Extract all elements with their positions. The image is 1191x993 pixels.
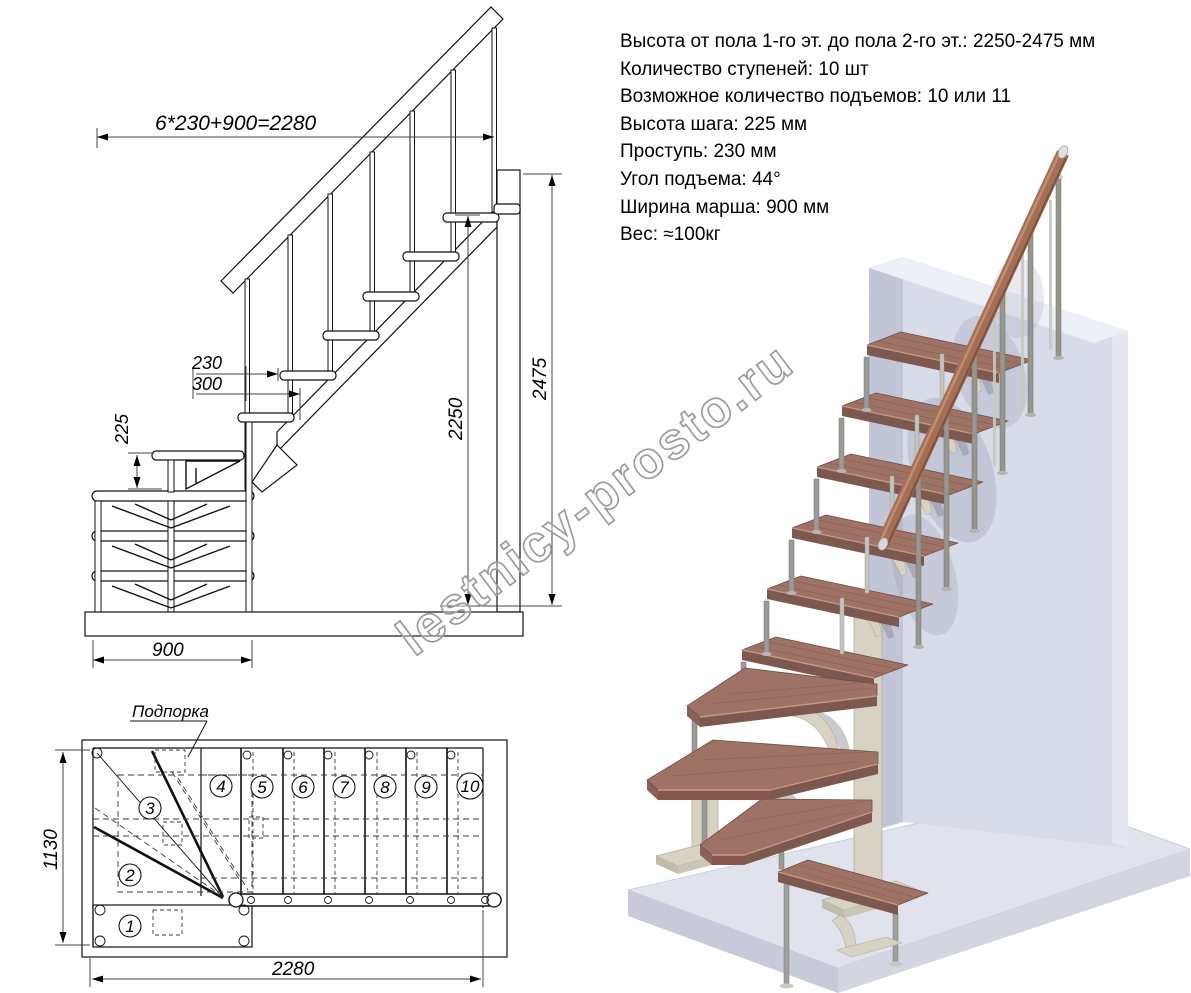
svg-text:10: 10 xyxy=(461,777,480,796)
support-label: Подпорка xyxy=(132,702,209,721)
spec-line-step-height: Высота шага: 225 мм xyxy=(620,111,1185,139)
step-number-8: 8 xyxy=(374,776,396,798)
svg-text:2: 2 xyxy=(124,866,135,885)
spec-line-angle: Угол подъема: 44° xyxy=(620,166,1185,194)
spec-line-height-range: Высота от пола 1-го эт. до пола 2-го эт.… xyxy=(620,28,1185,56)
dim-total-run-label: 6*230+900=2280 xyxy=(155,112,316,135)
step-number-2: 2 xyxy=(119,864,141,886)
svg-text:5: 5 xyxy=(257,778,267,797)
dim-tread-depth-label: 300 xyxy=(192,374,222,394)
dim-module-width-label: 900 xyxy=(152,640,184,661)
dim-height-floor-label: 2250 xyxy=(446,397,467,441)
svg-text:7: 7 xyxy=(339,778,349,797)
step-number-7: 7 xyxy=(333,776,355,798)
svg-text:6: 6 xyxy=(298,778,308,797)
svg-text:3: 3 xyxy=(145,799,155,818)
treads-elevation xyxy=(92,204,520,581)
step-number-9: 9 xyxy=(415,776,437,798)
spec-line-step-count: Количество ступеней: 10 шт xyxy=(620,56,1185,84)
svg-text:9: 9 xyxy=(421,778,431,797)
dim-tread-run-label: 230 xyxy=(191,353,222,373)
step-number-6: 6 xyxy=(292,776,314,798)
plan-width-label: 1130 xyxy=(41,829,62,870)
dim-height-top-label: 2475 xyxy=(530,357,551,401)
svg-text:8: 8 xyxy=(380,778,390,797)
step-number-10: 10 xyxy=(457,773,483,799)
step-number-5: 5 xyxy=(251,776,273,798)
spec-line-weight: Вес: ≈100кг xyxy=(620,221,1185,249)
render-3d xyxy=(628,144,1190,993)
step-number-3: 3 xyxy=(139,797,161,819)
spec-line-tread: Проступь: 230 мм xyxy=(620,138,1185,166)
watermark-text: lestnicy-prosto.ru xyxy=(387,332,805,667)
dim-riser-label: 225 xyxy=(112,413,132,445)
plan-length-label: 2280 xyxy=(271,959,315,980)
plan-outer-rect xyxy=(82,740,507,957)
svg-text:1: 1 xyxy=(125,917,134,936)
step-number-1: 1 xyxy=(119,915,141,937)
step-number-4: 4 xyxy=(210,775,232,797)
spec-block: Высота от пола 1-го эт. до пола 2-го эт.… xyxy=(620,28,1185,249)
plan-view: 1 2 3 4 5 6 7 8 9 10 Подпорка 1130 xyxy=(41,702,507,987)
spec-line-rise-count: Возможное количество подъемов: 10 или 11 xyxy=(620,83,1185,111)
svg-text:4: 4 xyxy=(216,777,225,796)
spec-line-march-width: Ширина марша: 900 мм xyxy=(620,194,1185,222)
staircase-drawing-page: 6*230+900=2280 230 300 225 2250 2475 900 xyxy=(0,0,1191,993)
